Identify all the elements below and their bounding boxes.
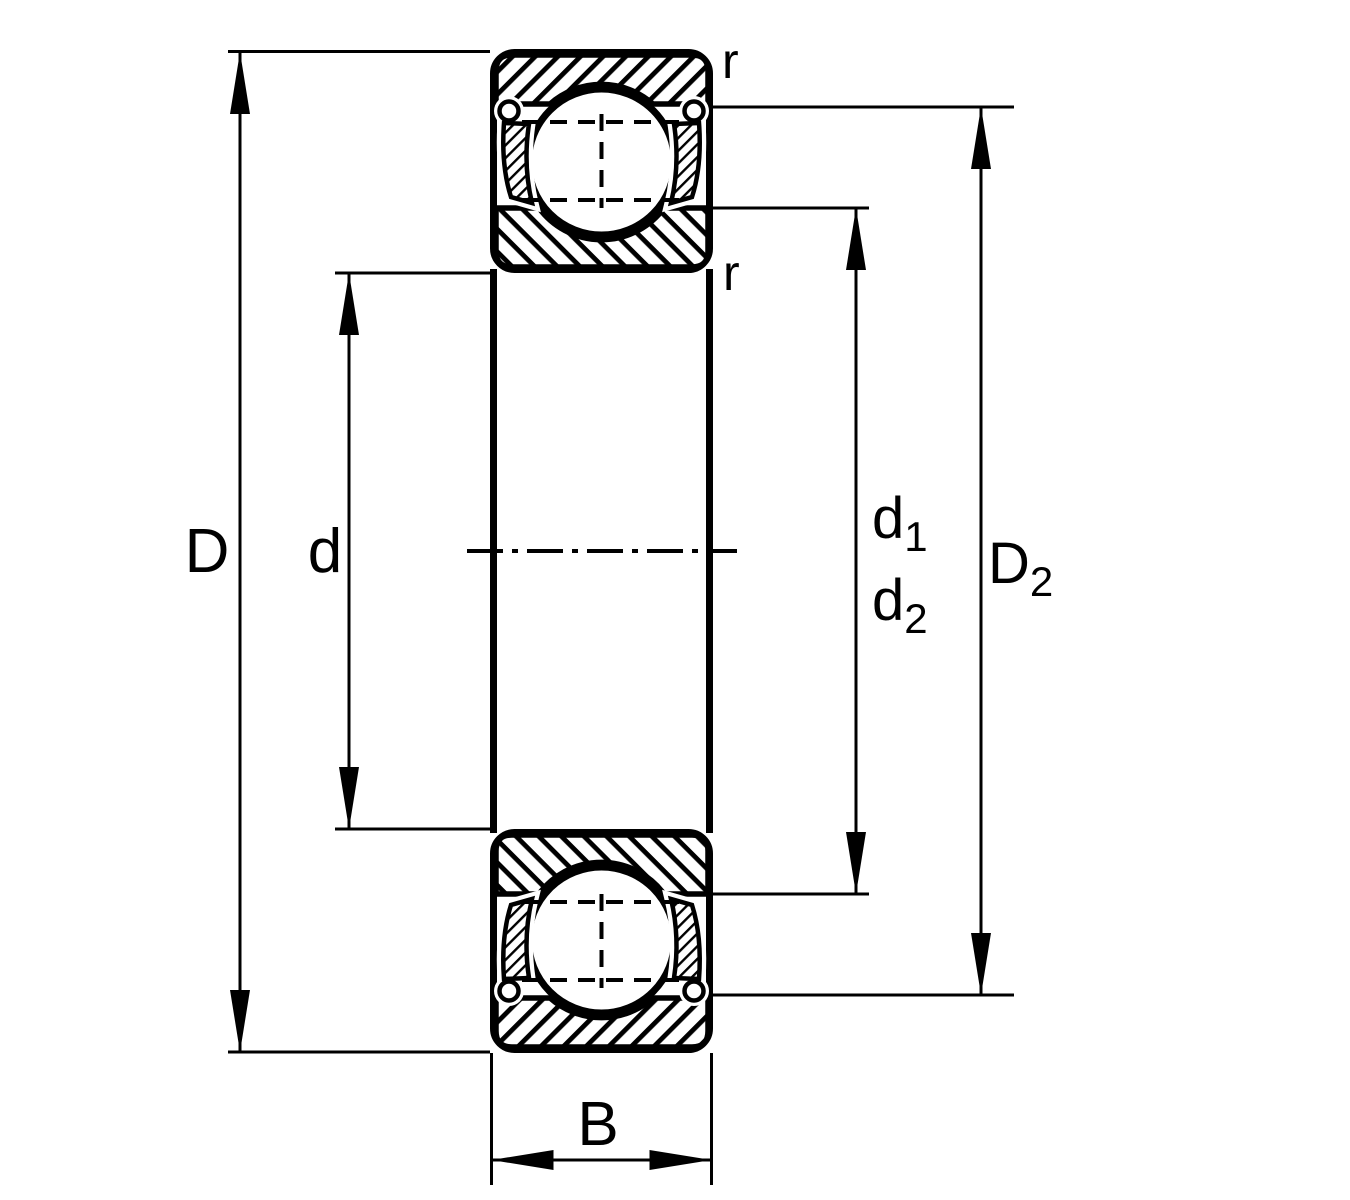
arrowhead-up-icon <box>971 107 991 169</box>
label-width-B: B <box>577 1090 618 1159</box>
arrowhead-down-icon <box>846 832 866 894</box>
label-d2-base: d <box>872 568 904 633</box>
label-corner-radius-r-top: r <box>722 33 739 89</box>
ball-bottom <box>529 867 675 1013</box>
arrowhead-left-icon <box>492 1150 554 1170</box>
label-bore-diameter-d: d <box>308 517 342 586</box>
shield-curl-icon <box>685 982 704 1001</box>
ball-top <box>529 89 675 235</box>
label-D2-base: D <box>988 531 1030 596</box>
label-corner-radius-r-inner: r <box>723 245 740 301</box>
label-d1-base: d <box>872 486 904 551</box>
bearing-section-top <box>494 53 710 270</box>
arrowhead-up-icon <box>339 273 359 335</box>
arrowhead-down-icon <box>971 933 991 995</box>
bearing-dimension-drawing-page: D d d1 d2 D2 B r r <box>0 0 1350 1200</box>
bearing-section-bottom <box>494 833 710 1050</box>
shield-curl-icon <box>500 982 519 1001</box>
label-outer-diameter-D: D <box>185 517 230 586</box>
label-D2: D2 <box>988 531 1053 605</box>
label-D2-sub: 2 <box>1030 558 1053 605</box>
dimension-D <box>230 52 250 1052</box>
arrowhead-down-icon <box>230 990 250 1052</box>
label-d1-sub: 1 <box>904 513 927 560</box>
label-d2-sub: 2 <box>904 595 927 642</box>
label-d2: d2 <box>872 568 928 642</box>
dimension-d1-d2 <box>846 208 866 894</box>
arrowhead-up-icon <box>846 208 866 270</box>
shield-curl-icon <box>685 102 704 121</box>
shield-curl-icon <box>500 102 519 121</box>
label-d1: d1 <box>872 486 928 560</box>
arrowhead-up-icon <box>230 52 250 114</box>
arrowhead-down-icon <box>339 767 359 829</box>
arrowhead-right-icon <box>650 1150 712 1170</box>
bearing-cross-section-drawing: D d d1 d2 D2 B r r <box>0 0 1350 1200</box>
